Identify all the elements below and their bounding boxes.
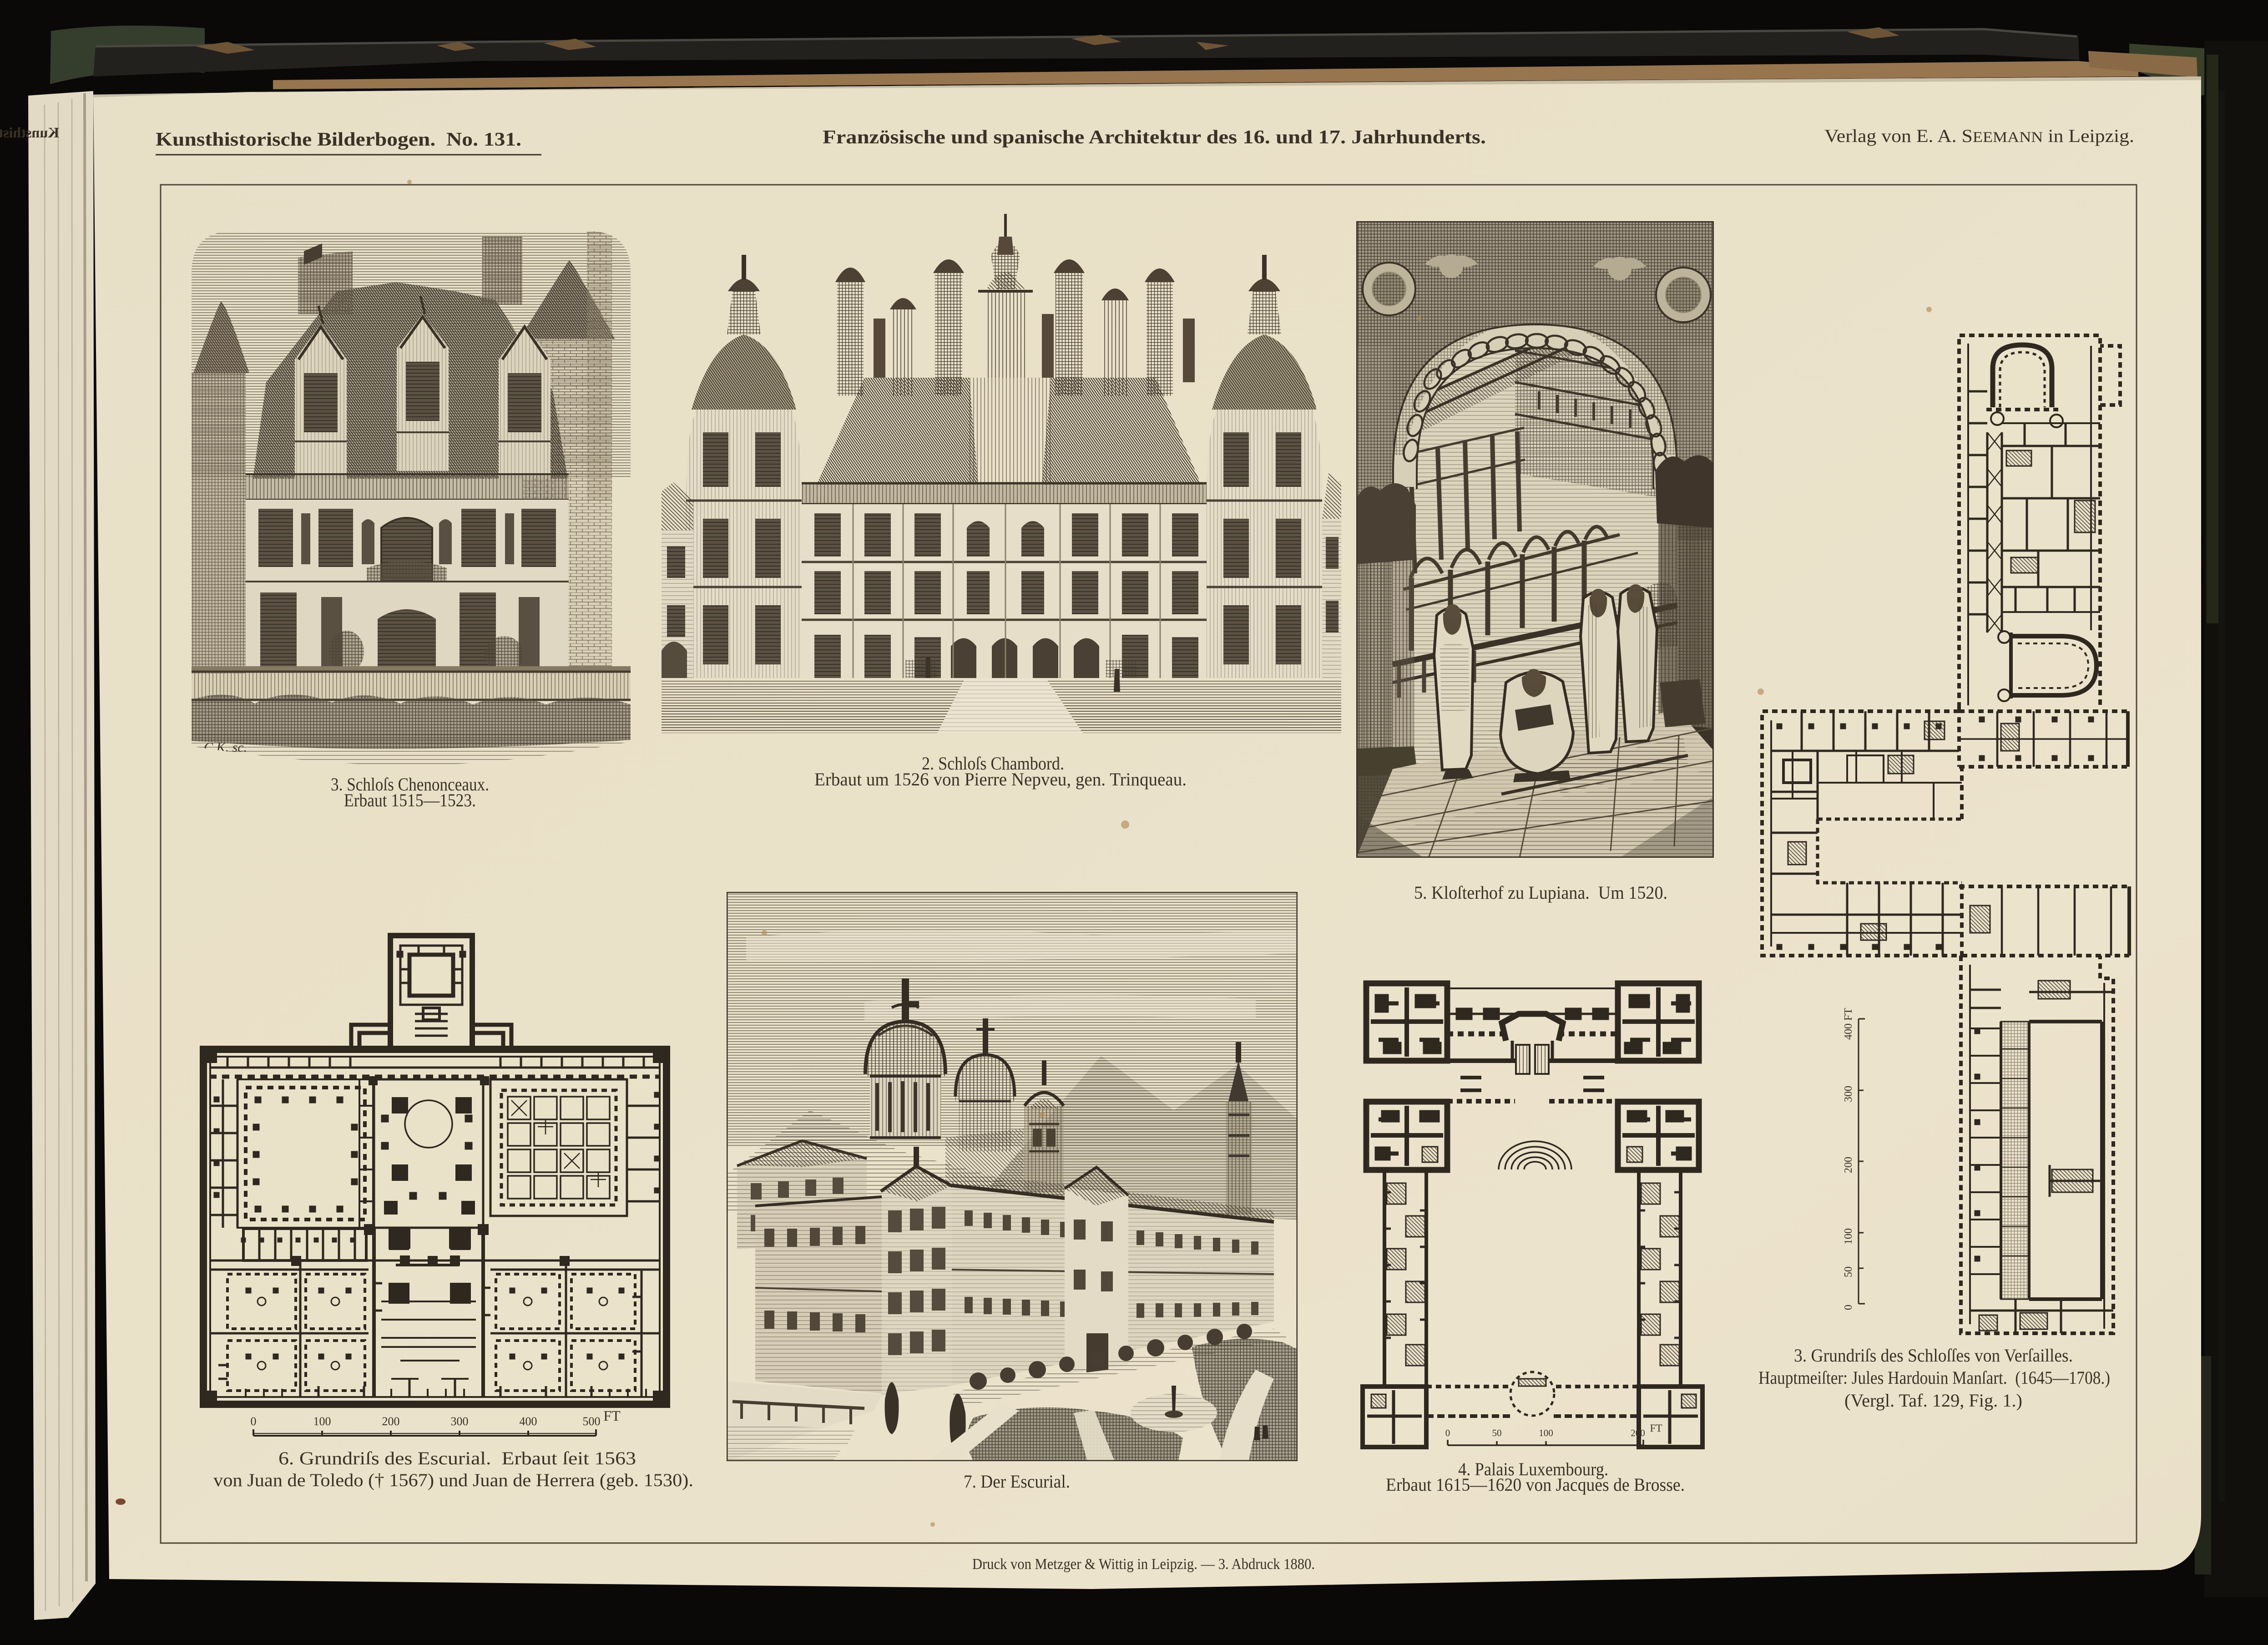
svg-text:Kunsthistorische Bilderbogen.: Kunsthistorische Bilderbogen. No. 131.: [156, 129, 521, 150]
svg-text:Französische und spanische Arc: Französische und spanische Architektur d…: [823, 127, 1486, 148]
svg-text:400 FT: 400 FT: [1843, 1008, 1854, 1040]
svg-text:Kunsthistor: Kunsthistor: [0, 124, 59, 141]
svg-text:(Vergl. Taf. 129, Fig. 1.): (Vergl. Taf. 129, Fig. 1.): [1844, 1390, 2022, 1411]
svg-text:500: 500: [583, 1415, 601, 1428]
svg-text:Hauptmeiſter: Jules Hardouin M: Hauptmeiſter: Jules Hardouin Manſart. (1…: [1758, 1367, 2110, 1388]
svg-text:FT: FT: [603, 1407, 621, 1424]
svg-text:7. Der Escurial.: 7. Der Escurial.: [964, 1471, 1070, 1492]
svg-text:0: 0: [1445, 1427, 1450, 1438]
svg-text:FT: FT: [1650, 1422, 1662, 1434]
svg-text:6. Grundriſs des Escurial. Er: 6. Grundriſs des Escurial. Erbaut ſeit 1…: [278, 1448, 636, 1468]
svg-text:200: 200: [1843, 1157, 1854, 1173]
svg-text:400: 400: [520, 1415, 537, 1428]
svg-text:0: 0: [1843, 1305, 1854, 1310]
svg-text:50: 50: [1843, 1266, 1854, 1277]
svg-text:100: 100: [1843, 1228, 1854, 1245]
svg-text:300: 300: [1843, 1086, 1854, 1102]
svg-text:50: 50: [1492, 1427, 1502, 1438]
svg-text:200: 200: [382, 1415, 400, 1428]
svg-text:Erbaut um 1526 von Pierre Nepv: Erbaut um 1526 von Pierre Nepveu, gen. T…: [814, 769, 1187, 790]
svg-text:300: 300: [451, 1415, 469, 1428]
svg-text:Druck von Metzger & Wittig in: Druck von Metzger & Wittig in Leipzig. —…: [972, 1556, 1315, 1573]
svg-text:Erbaut 1515—1523.: Erbaut 1515—1523.: [344, 790, 476, 810]
svg-text:3. Grundriſs des Schloſſes von: 3. Grundriſs des Schloſſes von Verſaille…: [1794, 1345, 2073, 1366]
svg-text:200: 200: [1631, 1427, 1645, 1438]
svg-text:Erbaut 1615—1620 von Jacques d: Erbaut 1615—1620 von Jacques de Brosse.: [1386, 1474, 1685, 1495]
svg-text:100: 100: [313, 1415, 331, 1428]
svg-text:5. Kloſterhof zu Lupiana. Um: 5. Kloſterhof zu Lupiana. Um 1520.: [1414, 882, 1667, 903]
svg-text:von Juan de Toledo († 1567) un: von Juan de Toledo († 1567) und Juan de …: [213, 1470, 693, 1490]
svg-text:100: 100: [1539, 1427, 1553, 1438]
svg-text:0: 0: [251, 1415, 257, 1428]
